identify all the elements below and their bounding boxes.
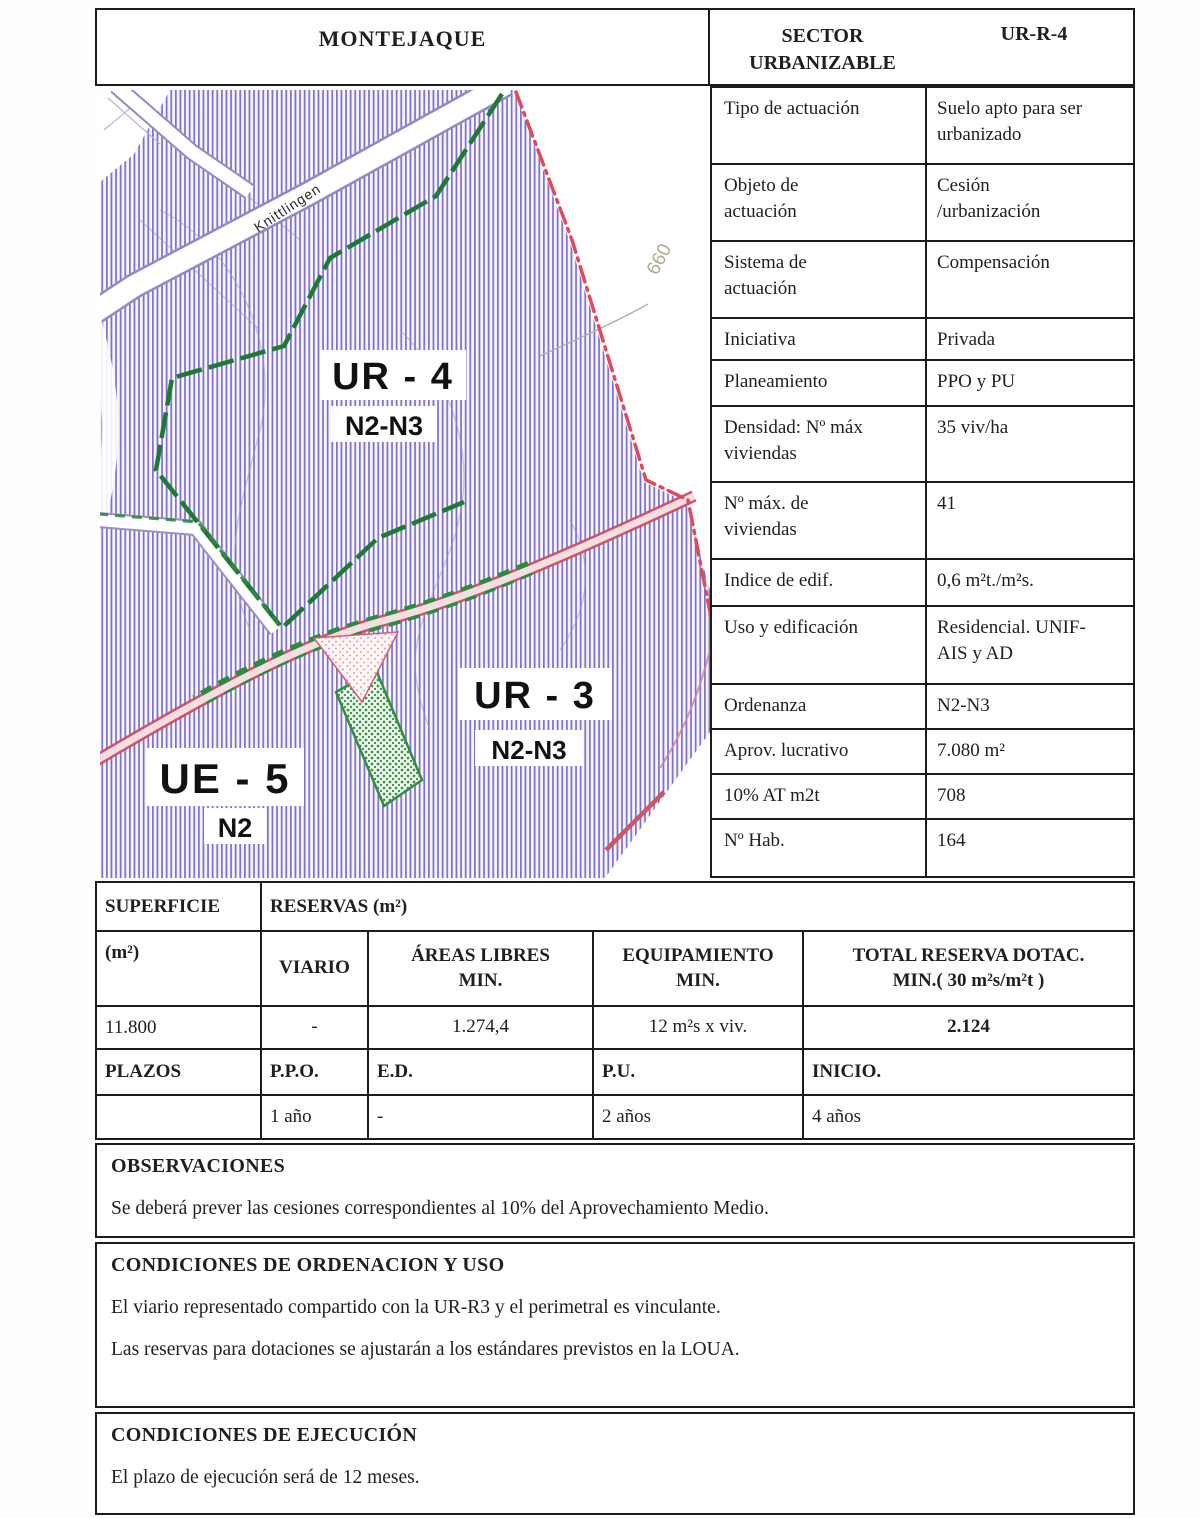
section-paragraph: Se deberá prever las cesiones correspond…	[111, 1198, 1119, 1220]
sector-header: SECTOR URBANIZABLE UR-R-4	[710, 10, 1133, 84]
attr-label: Planeamiento	[712, 361, 925, 405]
col-header: TOTAL RESERVA DOTAC. MIN.( 30 m²s/m²t )	[802, 932, 1133, 1005]
table-cell: 1.274,4	[367, 1007, 592, 1048]
label-ur3-sub: N2-N3	[491, 735, 566, 765]
section-heading: OBSERVACIONES	[111, 1155, 1119, 1178]
table-cell	[97, 1096, 260, 1138]
reservas-plazos-table: SUPERFICIE RESERVAS (m²) (m²) VIARIO ÁRE…	[95, 881, 1135, 1140]
attr-value: 0,6 m²t./m²s.	[925, 560, 1133, 605]
attr-label: Tipo de actuación	[712, 88, 925, 163]
attr-value: Compensación	[925, 242, 1133, 317]
table-row: Ordenanza N2-N3	[712, 685, 1133, 730]
section-heading: CONDICIONES DE EJECUCIÓN	[111, 1424, 1119, 1447]
attr-value: 41	[925, 483, 1133, 558]
label-ur3: UR - 3	[474, 675, 596, 717]
attr-label: 10% AT m2t	[712, 775, 925, 818]
attr-value: N2-N3	[925, 685, 1133, 728]
table-row: 10% AT m2t 708	[712, 775, 1133, 820]
attr-label: Ordenanza	[712, 685, 925, 728]
table-row: Densidad: Nº máx viviendas 35 viv/ha	[712, 407, 1133, 483]
col-header: VIARIO	[260, 932, 367, 1005]
sector-code: UR-R-4	[935, 10, 1133, 84]
label-ur4: UR - 4	[332, 356, 454, 398]
attr-label: Densidad: Nº máx viviendas	[712, 407, 925, 481]
label-ur4-sub: N2-N3	[345, 411, 423, 441]
table-cell: 2 años	[592, 1096, 802, 1138]
table-row: Aprov. lucrativo 7.080 m²	[712, 730, 1133, 775]
table-cell: 12 m²s x viv.	[592, 1007, 802, 1048]
table-row: SUPERFICIE RESERVAS (m²)	[97, 883, 1133, 930]
col-header: EQUIPAMIENTO MIN.	[592, 932, 802, 1005]
label-ue5-sub: N2	[218, 813, 253, 843]
attr-value: 7.080 m²	[925, 730, 1133, 773]
attr-value: Suelo apto para ser urbanizado	[925, 88, 1133, 163]
col-header: SUPERFICIE	[97, 883, 260, 930]
attr-value: 708	[925, 775, 1133, 818]
header-row: MONTEJAQUE SECTOR URBANIZABLE UR-R-4	[95, 8, 1135, 86]
sector-map-svg: 660	[100, 90, 710, 878]
table-row: PLAZOS P.P.O. E.D. P.U. INICIO.	[97, 1048, 1133, 1094]
col-header: INICIO.	[802, 1050, 1133, 1094]
col-header: RESERVAS (m²)	[260, 883, 1133, 930]
section-ejecucion: CONDICIONES DE EJECUCIÓN El plazo de eje…	[95, 1412, 1135, 1515]
municipality-title: MONTEJAQUE	[97, 10, 710, 84]
attr-label: Objeto de actuación	[712, 165, 925, 240]
table-row: 11.800 - 1.274,4 12 m²s x viv. 2.124	[97, 1005, 1133, 1048]
attr-label: Sistema de actuación	[712, 242, 925, 317]
attr-label: Uso y edificación	[712, 607, 925, 683]
attr-value: 164	[925, 820, 1133, 876]
section-heading: CONDICIONES DE ORDENACION Y USO	[111, 1254, 1119, 1277]
table-cell: -	[367, 1096, 592, 1138]
attr-value: Residencial. UNIF- AIS y AD	[925, 607, 1133, 683]
table-row: Planeamiento PPO y PU	[712, 361, 1133, 407]
attr-label: Aprov. lucrativo	[712, 730, 925, 773]
sector-label: SECTOR URBANIZABLE	[710, 10, 935, 84]
table-row: (m²) VIARIO ÁREAS LIBRES MIN. EQUIPAMIEN…	[97, 930, 1133, 1005]
col-header: P.U.	[592, 1050, 802, 1094]
table-row: Uso y edificación Residencial. UNIF- AIS…	[712, 607, 1133, 685]
col-header: (m²)	[97, 932, 260, 1005]
col-header: ÁREAS LIBRES MIN.	[367, 932, 592, 1005]
col-header: P.P.O.	[260, 1050, 367, 1094]
table-row: Indice de edif. 0,6 m²t./m²s.	[712, 560, 1133, 607]
table-row: Nº máx. de viviendas 41	[712, 483, 1133, 560]
table-cell: 11.800	[97, 1007, 260, 1048]
table-row: Nº Hab. 164	[712, 820, 1133, 876]
table-cell: 4 años	[802, 1096, 1133, 1138]
table-row: Iniciativa Privada	[712, 319, 1133, 361]
table-row: Tipo de actuación Suelo apto para ser ur…	[712, 88, 1133, 165]
planning-sheet: MONTEJAQUE SECTOR URBANIZABLE UR-R-4	[0, 0, 1200, 1518]
section-paragraph: El viario representado compartido con la…	[111, 1297, 1119, 1319]
section-observaciones: OBSERVACIONES Se deberá prever las cesio…	[95, 1143, 1135, 1238]
sector-map: 660	[100, 90, 710, 878]
attr-label: Nº Hab.	[712, 820, 925, 876]
attribute-table: Tipo de actuación Suelo apto para ser ur…	[710, 86, 1135, 878]
attr-label: Indice de edif.	[712, 560, 925, 605]
section-paragraph: El plazo de ejecución será de 12 meses.	[111, 1467, 1119, 1489]
section-paragraph: Las reservas para dotaciones se ajustará…	[111, 1339, 1119, 1361]
attr-value: Privada	[925, 319, 1133, 359]
attr-value: Cesión /urbanización	[925, 165, 1133, 240]
col-header: PLAZOS	[97, 1050, 260, 1094]
table-row: Sistema de actuación Compensación	[712, 242, 1133, 319]
table-row: Objeto de actuación Cesión /urbanización	[712, 165, 1133, 242]
table-cell: 2.124	[802, 1007, 1133, 1048]
attr-label: Iniciativa	[712, 319, 925, 359]
table-row: 1 año - 2 años 4 años	[97, 1094, 1133, 1138]
table-cell: -	[260, 1007, 367, 1048]
label-ue5: UE - 5	[159, 755, 290, 802]
table-cell: 1 año	[260, 1096, 367, 1138]
attr-value: PPO y PU	[925, 361, 1133, 405]
col-header: E.D.	[367, 1050, 592, 1094]
section-ordenacion: CONDICIONES DE ORDENACION Y USO El viari…	[95, 1242, 1135, 1408]
attr-value: 35 viv/ha	[925, 407, 1133, 481]
attr-label: Nº máx. de viviendas	[712, 483, 925, 558]
